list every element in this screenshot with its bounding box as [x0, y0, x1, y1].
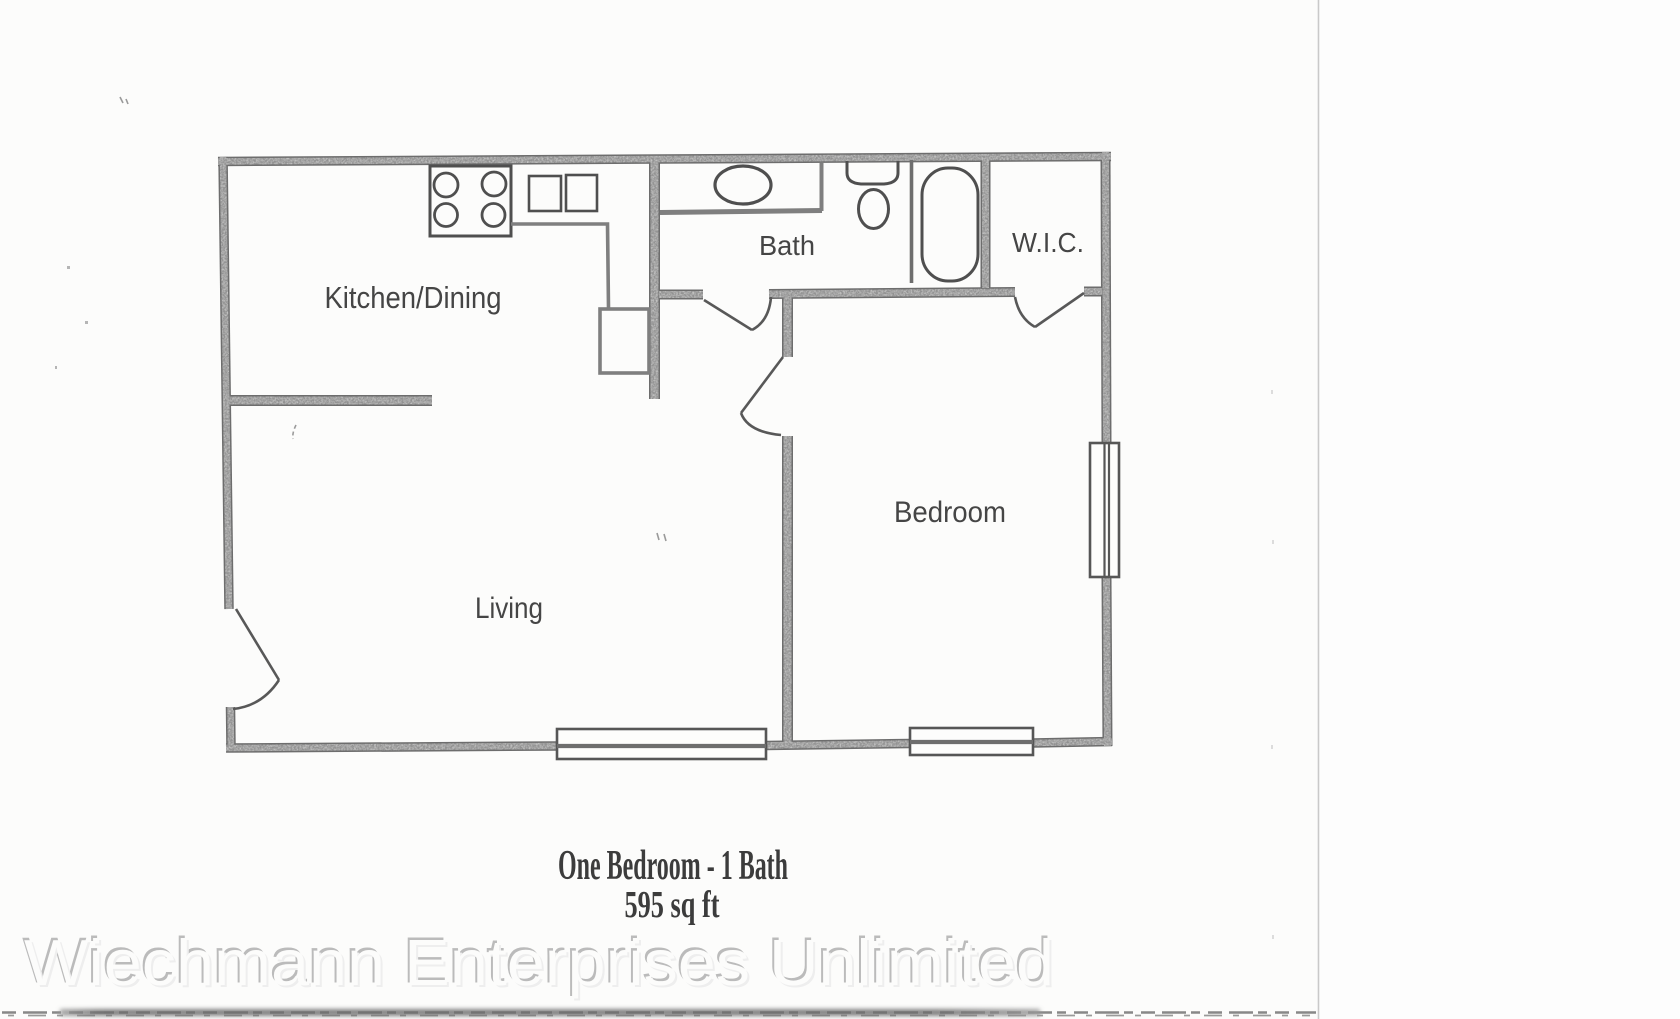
svg-text:Bath: Bath: [759, 230, 815, 261]
svg-text:Bedroom: Bedroom: [894, 496, 1006, 529]
svg-text:Living: Living: [475, 592, 543, 625]
svg-text:One Bedroom - 1 Bath: One Bedroom - 1 Bath: [558, 843, 788, 889]
svg-text:595 sq ft: 595 sq ft: [625, 884, 720, 926]
svg-text:W.I.C.: W.I.C.: [1012, 227, 1084, 258]
svg-text:Kitchen/Dining: Kitchen/Dining: [325, 280, 502, 315]
svg-text:Wiechmann Enterprises Unlimite: Wiechmann Enterprises Unlimited: [24, 926, 1054, 999]
